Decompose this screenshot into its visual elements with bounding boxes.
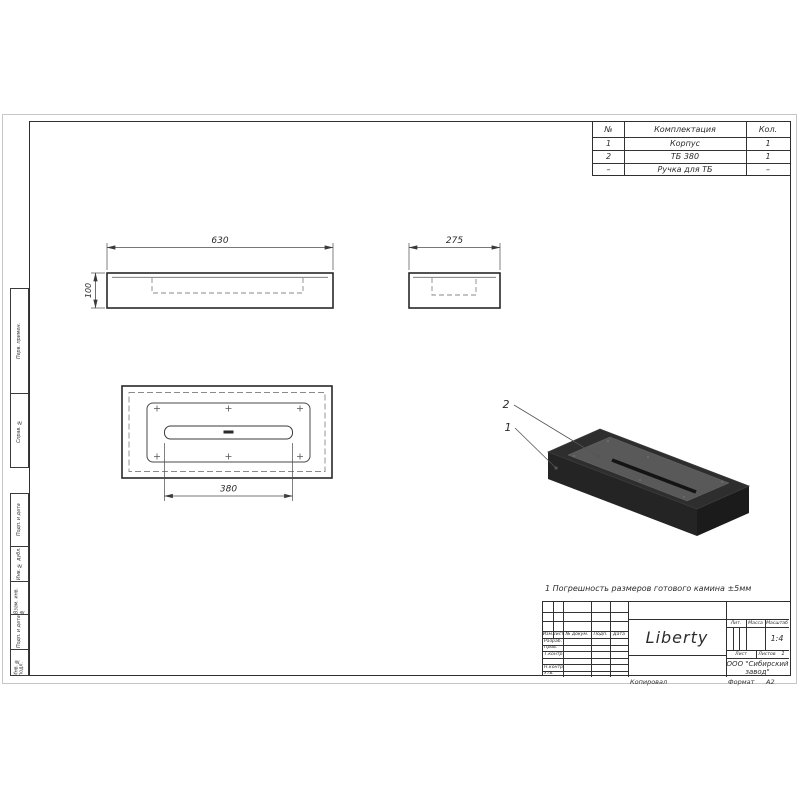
drawing-sheet: Перв. примен. Справ. № Подп. и дата Инв.… bbox=[0, 0, 800, 800]
tb-line bbox=[543, 658, 628, 659]
tb-mass-label: Масса bbox=[746, 619, 765, 627]
callout-2: 2 bbox=[503, 398, 510, 411]
tb-scale-label: Масштаб bbox=[765, 619, 789, 627]
title-block: Изм. Лист № докум. Подп. Дата Разраб. Пр… bbox=[542, 601, 791, 676]
dim-burner-value: 380 bbox=[220, 485, 237, 495]
top-view: 380 bbox=[122, 386, 332, 501]
tb-sheet-label: Лист bbox=[726, 650, 756, 658]
slot-handle bbox=[224, 431, 234, 434]
format-label: Формат bbox=[728, 678, 754, 686]
format-value: А2 bbox=[766, 678, 775, 686]
tb-col-date: Дата bbox=[610, 631, 628, 638]
tb-line bbox=[543, 621, 628, 622]
tb-line bbox=[733, 627, 734, 650]
front-view: 630 100 bbox=[84, 236, 333, 308]
hidden-cavity-side bbox=[432, 278, 476, 295]
dim-depth-value: 275 bbox=[446, 236, 463, 246]
company-name-line2: завод" bbox=[726, 667, 789, 676]
copied-label: Копировал bbox=[630, 678, 667, 686]
tb-scale-value: 1:4 bbox=[765, 627, 789, 650]
product-name: Liberty bbox=[628, 619, 726, 655]
tb-col-izm: Изм. bbox=[543, 631, 553, 638]
tb-row-approve: Утв. bbox=[544, 671, 563, 678]
tb-line bbox=[543, 612, 628, 613]
tb-line bbox=[628, 655, 726, 656]
isometric-view: 2 1 bbox=[503, 398, 750, 536]
callout-1: 1 bbox=[505, 421, 512, 434]
dim-width-value: 630 bbox=[211, 236, 228, 246]
leader-line-1 bbox=[515, 428, 556, 468]
hidden-cavity-front bbox=[152, 278, 303, 293]
tb-sheets-label: Листов bbox=[756, 650, 778, 658]
dim-height-value: 100 bbox=[84, 283, 93, 298]
tb-sheets-value: 1 bbox=[778, 650, 788, 658]
drawing-views: 630 100 275 bbox=[0, 0, 800, 800]
tb-line bbox=[591, 602, 592, 677]
tb-col-doc: № докум. bbox=[563, 631, 591, 638]
tb-col-sign: Подп. bbox=[591, 631, 610, 638]
tb-row-tcontr: Т.контр. bbox=[544, 651, 563, 658]
side-view: 275 bbox=[409, 236, 500, 308]
tb-col-list: Лист bbox=[553, 631, 563, 638]
tb-line bbox=[739, 627, 740, 650]
tb-line bbox=[610, 602, 611, 677]
tb-line bbox=[563, 602, 564, 677]
tb-lit-label: Лит. bbox=[726, 619, 746, 627]
